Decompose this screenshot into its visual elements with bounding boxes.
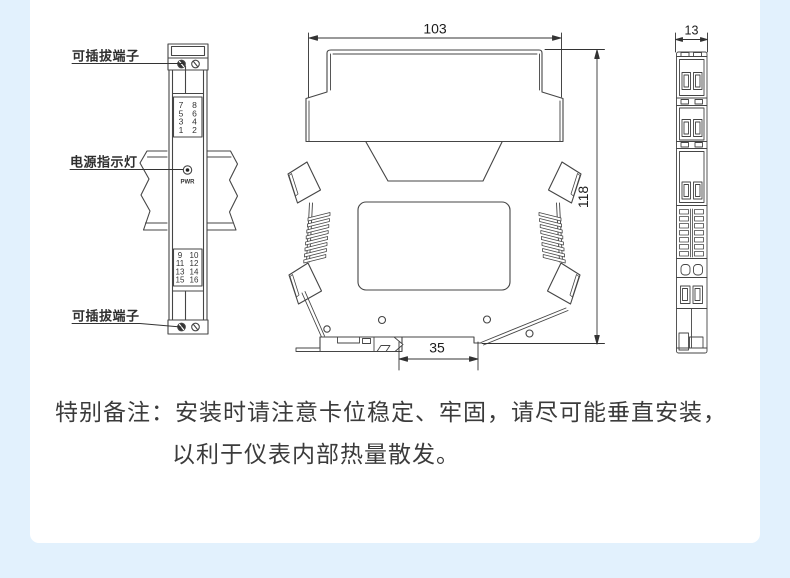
dim-depth-value: 13 [685, 24, 699, 38]
arrow-right-icon [553, 36, 562, 41]
top-screw-block [168, 58, 208, 70]
housing-top-outline [306, 50, 563, 142]
note-prefix: 特别备注： [55, 399, 175, 425]
mounting-hole [324, 326, 330, 332]
leader-line [72, 324, 181, 328]
terminal-number: 16 [190, 276, 199, 285]
terminal-contacts-hatching-right [539, 213, 565, 264]
arrow-left-icon [399, 357, 408, 362]
label-power-indicator: 电源指示灯 [70, 155, 138, 170]
bottom-screw-block [168, 320, 208, 334]
bottom-right-slope [481, 308, 568, 345]
dimension-depth: 13 [676, 24, 708, 53]
terminal-wing [548, 263, 581, 304]
power-led-label: PWR [181, 180, 196, 186]
front-face-recess [366, 142, 502, 181]
dim-rail-width-value: 35 [429, 340, 445, 356]
din-rail-left-segment [140, 151, 167, 230]
module-end [677, 52, 708, 353]
side-view: 103 118 35 [288, 21, 605, 371]
dim-height-value: 118 [575, 186, 591, 209]
arrow-up-icon [595, 50, 600, 59]
module-front: 7 8 5 6 3 4 1 2 PWR 9 10 [168, 44, 208, 334]
dim-width-value: 103 [423, 21, 447, 37]
arrow-down-icon [595, 336, 600, 345]
terminal-number: 1 [179, 125, 184, 135]
rail-clip-release-bar [296, 348, 320, 352]
technical-drawing: 7 8 5 6 3 4 1 2 PWR 9 10 [0, 0, 790, 578]
mounting-hole [526, 330, 533, 337]
terminal-contacts-hatching-left [304, 213, 330, 264]
din-rail-right-segment [207, 151, 238, 230]
arrow-left-icon [676, 38, 683, 42]
label-top-terminal: 可插拔端子 [72, 49, 140, 64]
end-view: 13 [676, 24, 708, 354]
terminal-wing [289, 263, 322, 304]
arrow-right-icon [470, 357, 479, 362]
page: 7 8 5 6 3 4 1 2 PWR 9 10 [0, 0, 790, 578]
label-area [358, 202, 510, 290]
mounting-hole [379, 317, 386, 324]
power-led-center [186, 168, 190, 172]
mounting-hole [484, 316, 491, 323]
terminal-wing [288, 162, 321, 203]
callout-top-terminal: 可插拔端子 [72, 49, 183, 64]
terminal-number: 15 [176, 276, 185, 285]
callout-bottom-terminal: 可插拔端子 [72, 309, 181, 328]
front-view: 7 8 5 6 3 4 1 2 PWR 9 10 [70, 44, 238, 334]
arrow-right-icon [701, 38, 708, 42]
terminal-number: 2 [192, 125, 197, 135]
special-note-line-1: 特别备注：安装时请注意卡位稳定、牢固，请尽可能垂直安装， [55, 393, 727, 427]
label-bottom-terminal: 可插拔端子 [72, 309, 140, 324]
special-note-line-2: 以利于仪表内部热量散发。 [172, 435, 460, 469]
dimension-rail-width: 35 [399, 340, 478, 371]
note-text-1: 安装时请注意卡位稳定、牢固，请尽可能垂直安装， [175, 399, 727, 425]
arrow-left-icon [309, 36, 318, 41]
